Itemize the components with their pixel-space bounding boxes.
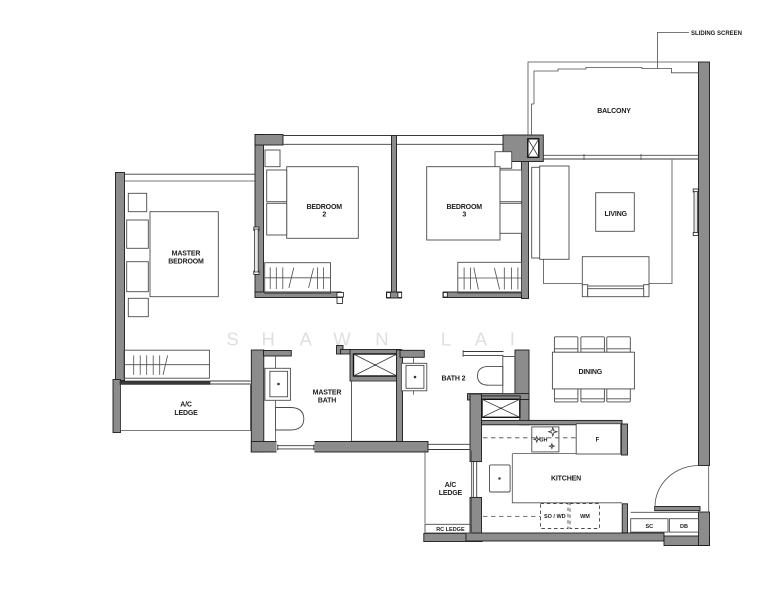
svg-text:DB: DB [680, 524, 688, 530]
svg-text:BEDROOM: BEDROOM [168, 259, 204, 266]
svg-text:A/C: A/C [445, 482, 457, 489]
svg-text:3: 3 [462, 212, 466, 219]
svg-text:WM: WM [580, 514, 590, 520]
svg-text:2: 2 [322, 212, 326, 219]
svg-text:L: L [441, 329, 451, 350]
svg-text:SC: SC [645, 524, 653, 530]
svg-text:LEDGE: LEDGE [439, 490, 463, 497]
svg-text:RC LEDGE: RC LEDGE [436, 527, 465, 533]
svg-text:BATH: BATH [318, 398, 336, 405]
svg-text:SLIDING SCREEN: SLIDING SCREEN [691, 31, 742, 37]
svg-text:BALCONY: BALCONY [597, 108, 631, 115]
svg-text:LIVING: LIVING [604, 211, 627, 218]
svg-text:N: N [375, 329, 388, 350]
svg-text:DINING: DINING [578, 369, 602, 376]
svg-text:A: A [475, 329, 488, 350]
svg-text:S: S [226, 329, 238, 350]
svg-text:BEDROOM: BEDROOM [306, 204, 342, 211]
svg-text:BEDROOM: BEDROOM [446, 204, 482, 211]
svg-text:A/C: A/C [180, 402, 192, 409]
svg-text:I: I [510, 329, 515, 350]
svg-text:H: H [262, 329, 275, 350]
svg-text:GH: GH [539, 437, 547, 443]
svg-text:MASTER: MASTER [313, 390, 342, 397]
svg-text:KITCHEN: KITCHEN [551, 476, 581, 483]
svg-text:SO / WD: SO / WD [544, 514, 566, 520]
svg-text:MASTER: MASTER [172, 251, 201, 258]
svg-text:A: A [300, 329, 313, 350]
svg-text:F: F [596, 438, 600, 444]
svg-text:LEDGE: LEDGE [174, 410, 198, 417]
svg-text:BATH 2: BATH 2 [441, 375, 465, 382]
